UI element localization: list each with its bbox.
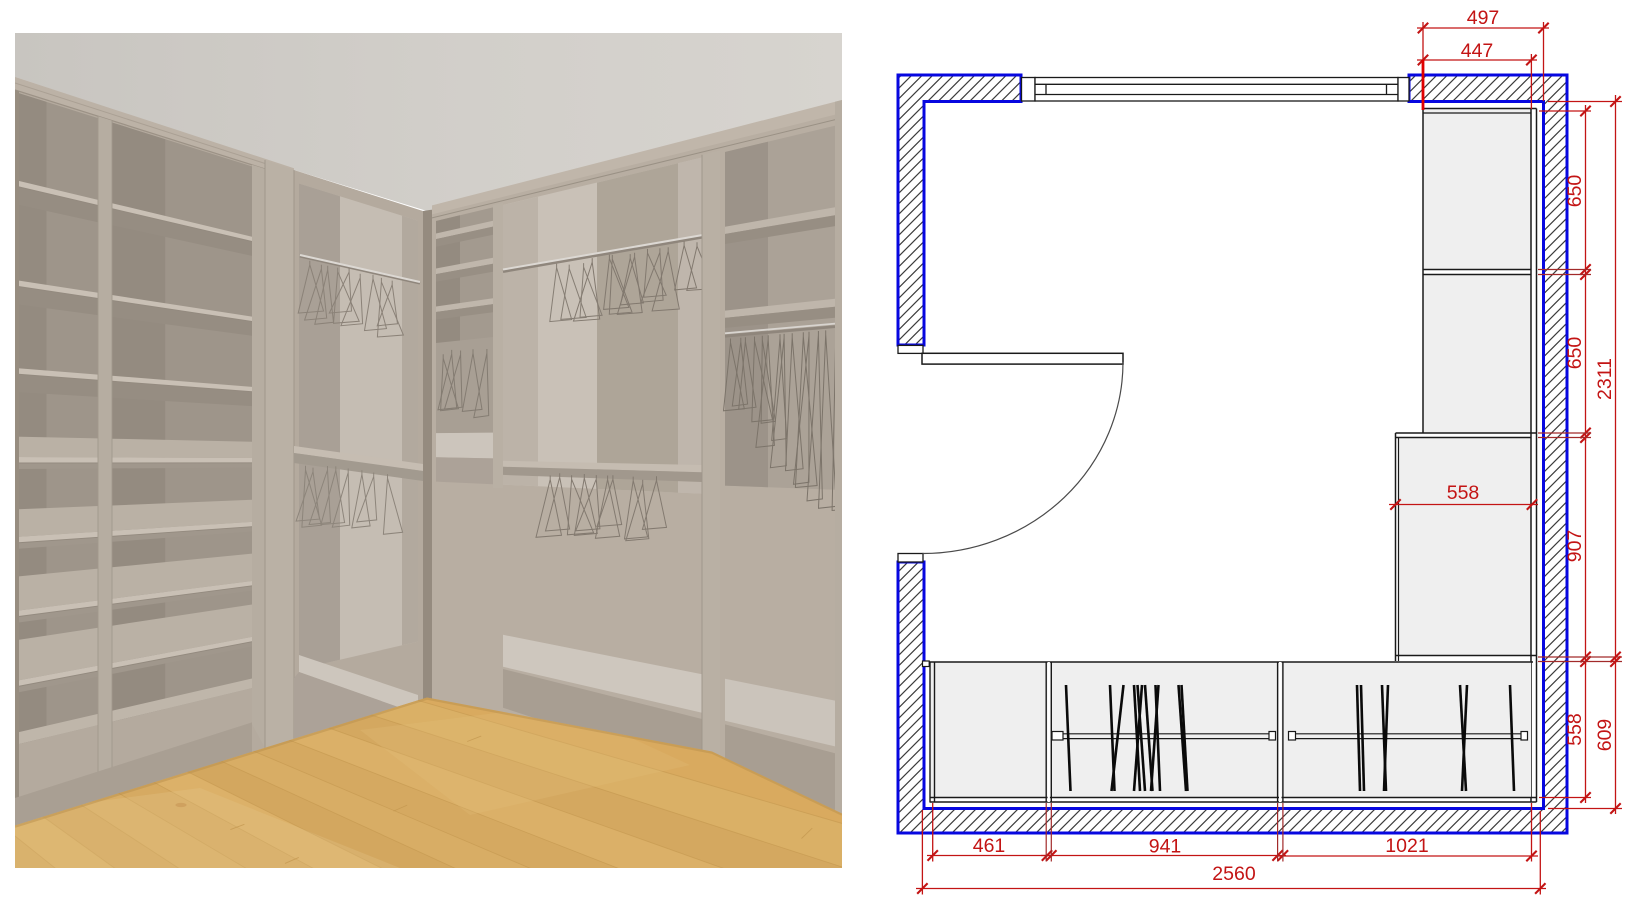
svg-text:558: 558	[1564, 713, 1586, 746]
svg-text:558: 558	[1447, 482, 1480, 504]
svg-text:941: 941	[1149, 836, 1182, 858]
svg-text:461: 461	[973, 835, 1006, 857]
svg-text:2311: 2311	[1594, 358, 1616, 400]
svg-text:1021: 1021	[1385, 835, 1428, 857]
svg-text:650: 650	[1564, 175, 1586, 208]
svg-text:609: 609	[1594, 719, 1616, 752]
svg-text:447: 447	[1461, 40, 1494, 62]
svg-text:650: 650	[1564, 337, 1586, 370]
svg-text:2560: 2560	[1212, 863, 1256, 885]
svg-text:907: 907	[1564, 530, 1586, 563]
svg-text:497: 497	[1467, 7, 1500, 29]
